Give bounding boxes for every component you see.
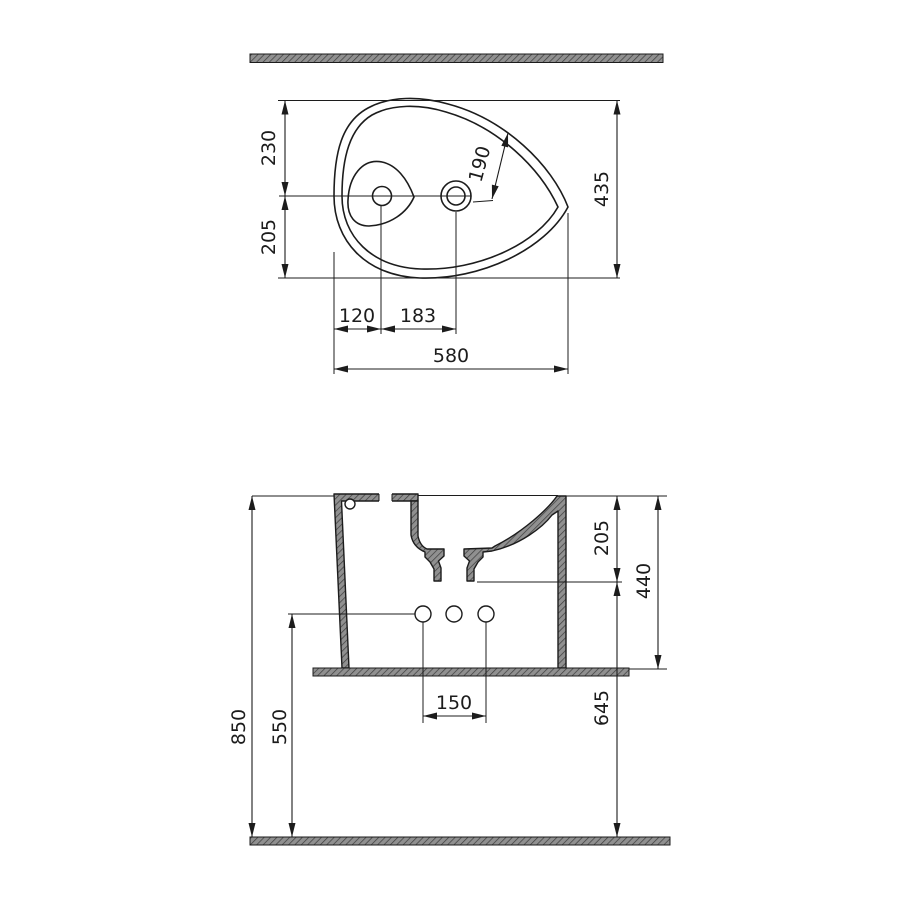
floor-section-bar (250, 837, 670, 845)
technical-drawing-sheet: 230 205 190 435 120 183 580 (0, 0, 900, 900)
section-bowl-left-and-drain (411, 501, 444, 581)
dim-label-hole-spacing: 150 (436, 692, 472, 714)
dim-label-faucet-to-rim: 190 (465, 144, 496, 185)
dim-label-rim-to-shelf: 440 (633, 563, 655, 599)
deck-hole-gap (379, 493, 392, 503)
top-view: 230 205 190 435 120 183 580 (258, 98, 620, 374)
wall-section-bar (250, 54, 663, 63)
dim-label-rim-to-drain: 205 (591, 520, 613, 556)
dim-label-back-to-centerline: 230 (258, 130, 280, 166)
basin-inner-rim (342, 106, 558, 269)
dim-190-leader-tick (473, 201, 493, 203)
dim-label-floor-to-holes: 550 (269, 709, 291, 745)
dim-label-drain-to-faucet: 183 (400, 305, 436, 327)
overflow-notch (345, 499, 355, 509)
dim-label-overall-depth: 435 (591, 171, 613, 207)
fixing-hole-3 (478, 606, 494, 622)
top-view-extension-lines (278, 101, 620, 375)
shelf-section-bar (313, 668, 629, 676)
basin-dimension-drawing: 230 205 190 435 120 183 580 (0, 0, 900, 900)
dim-label-overall-width: 580 (433, 345, 469, 367)
dim-line-faucet-to-rim (492, 133, 508, 199)
section-left-wall-and-deck (334, 494, 418, 668)
dim-label-floor-to-rim: 850 (228, 709, 250, 745)
dim-label-edge-to-drain: 120 (339, 305, 375, 327)
dim-label-centerline-to-front: 205 (258, 219, 280, 255)
dim-label-drain-to-floor: 645 (591, 690, 613, 726)
fixing-hole-2 (446, 606, 462, 622)
fixing-hole-1 (415, 606, 431, 622)
side-view: 205 440 645 150 550 850 (228, 493, 670, 846)
